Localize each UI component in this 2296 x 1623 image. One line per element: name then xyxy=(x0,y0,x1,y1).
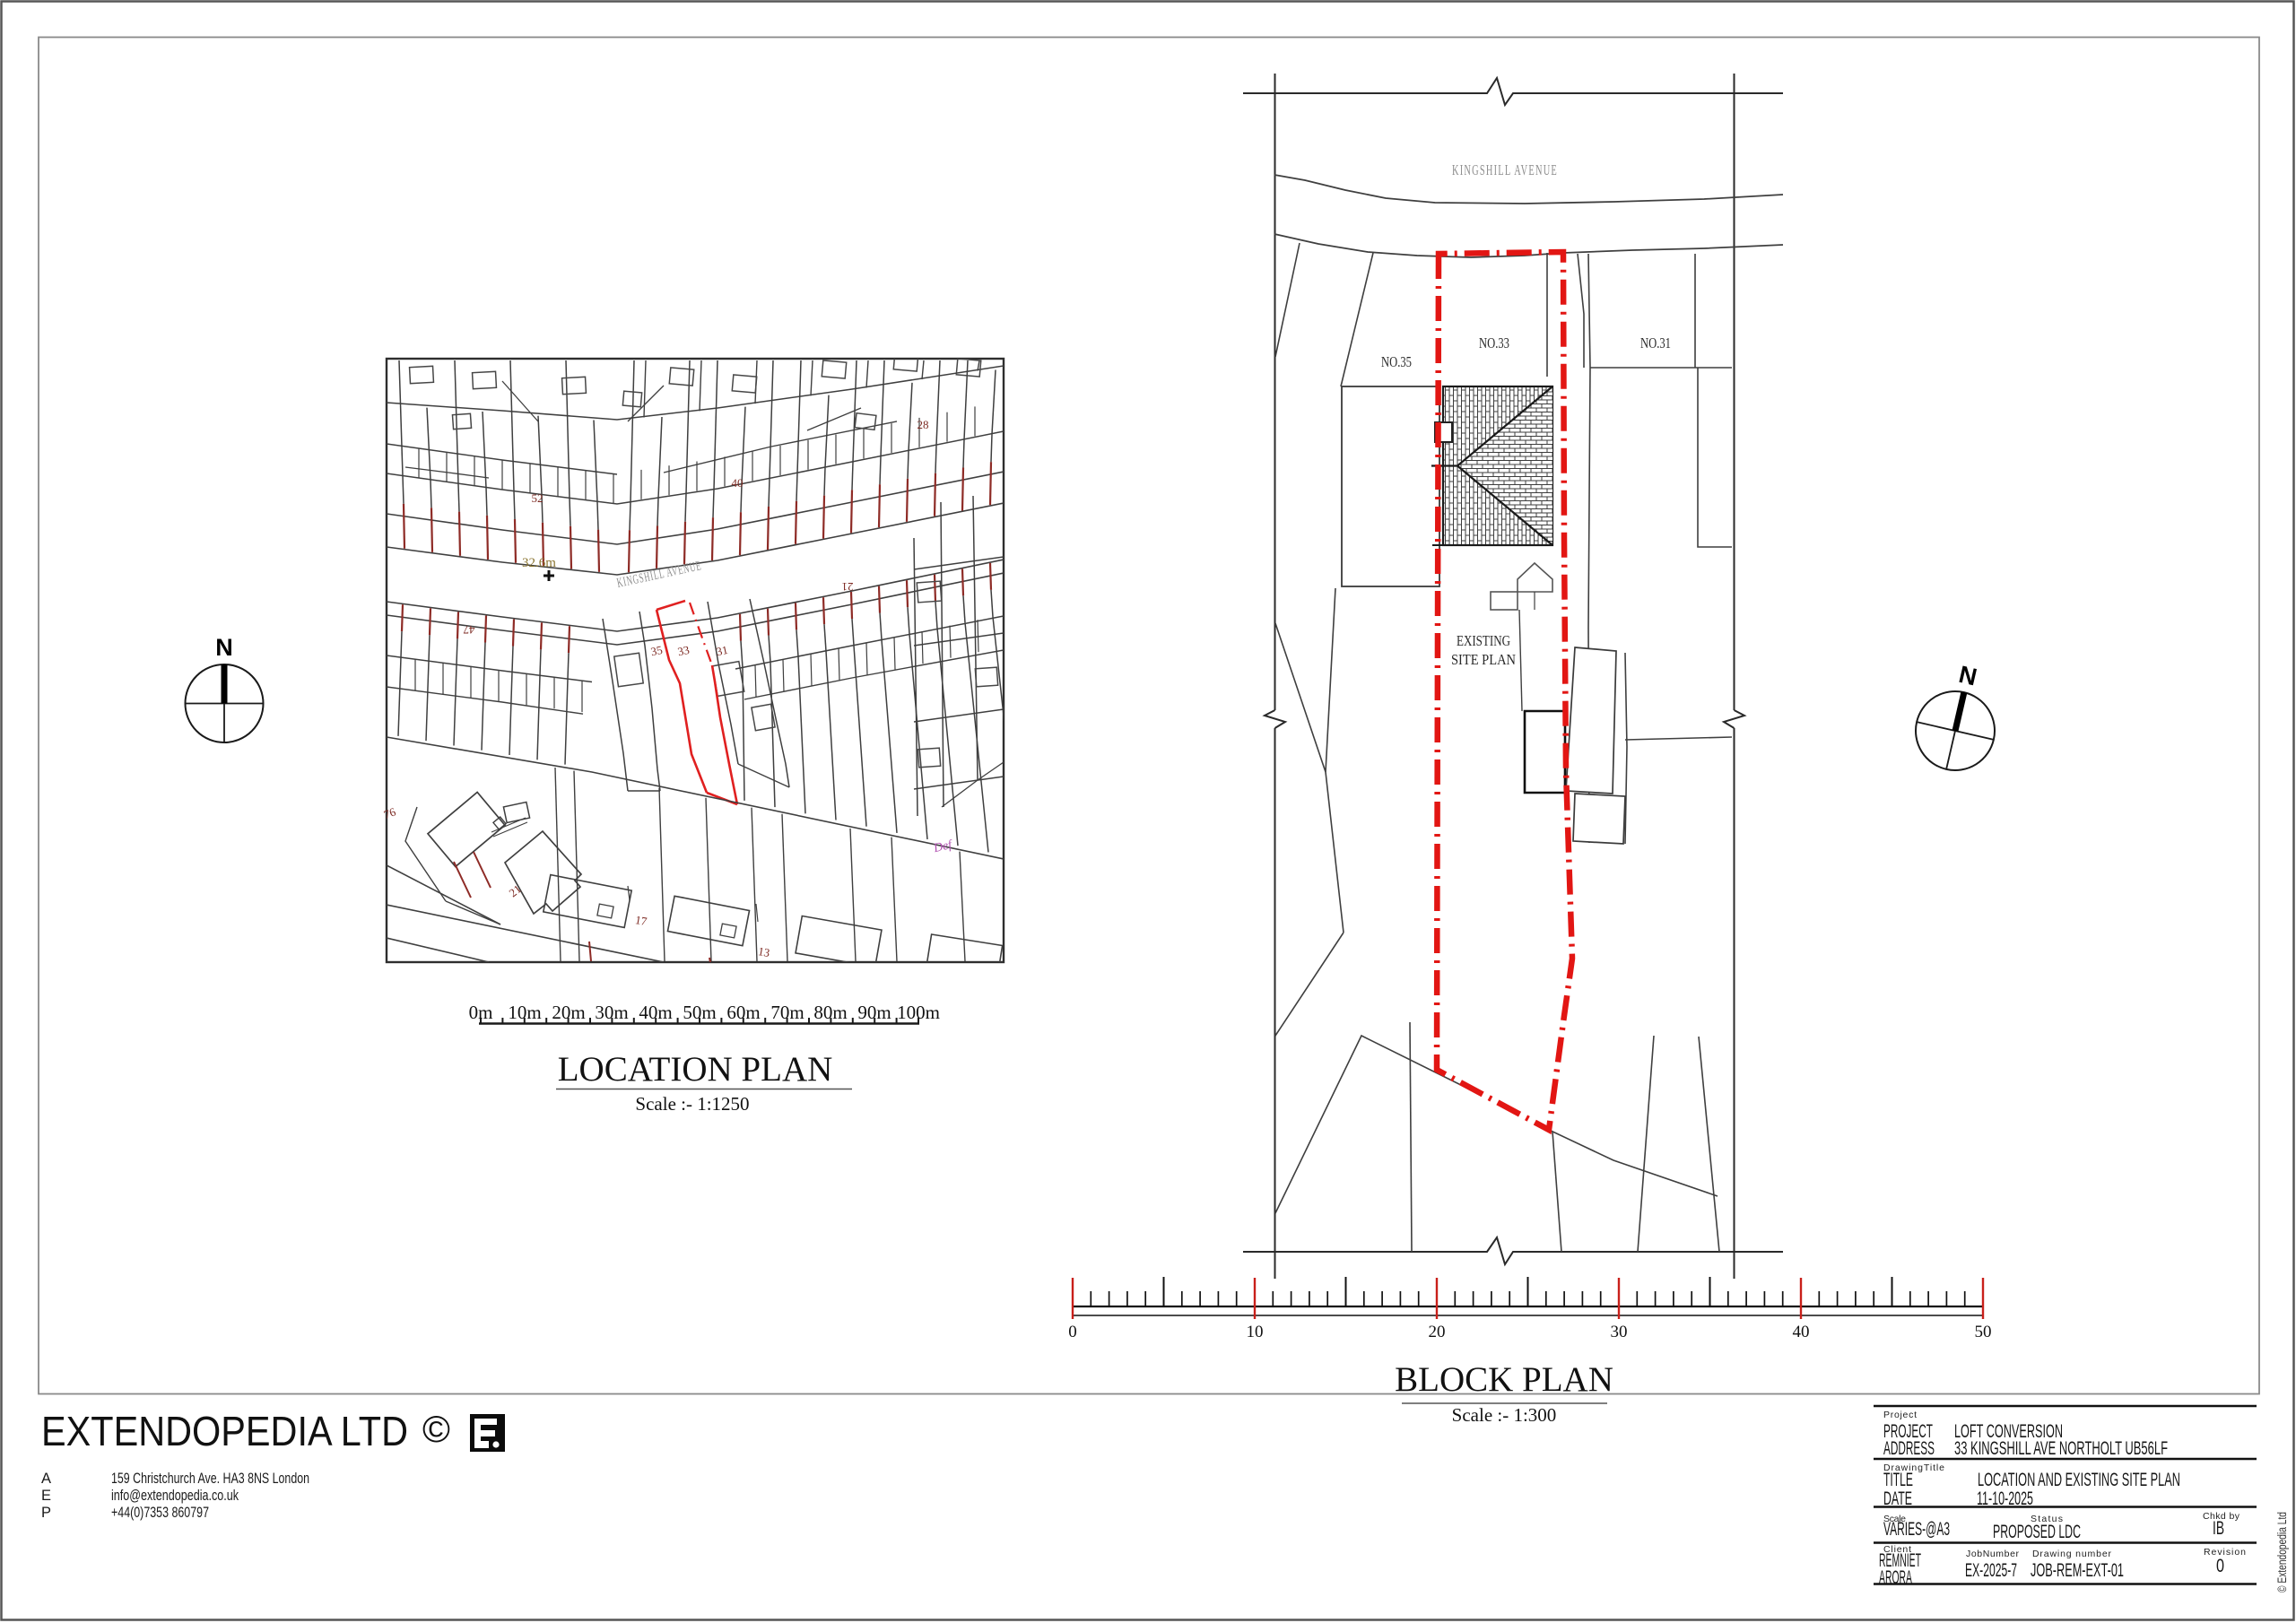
svg-text:P: P xyxy=(41,1505,51,1521)
svg-text:NO.35: NO.35 xyxy=(1381,353,1412,370)
svg-text:90m: 90m xyxy=(857,1002,891,1023)
svg-text:NO.33: NO.33 xyxy=(1479,334,1509,352)
svg-text:Drawing number: Drawing number xyxy=(2032,1549,2112,1559)
svg-text:50m: 50m xyxy=(683,1002,716,1023)
svg-text:Project: Project xyxy=(1883,1410,1917,1420)
svg-text:DATE: DATE xyxy=(1883,1488,1912,1509)
svg-text:0m: 0m xyxy=(469,1002,493,1023)
svg-text:52: 52 xyxy=(532,491,544,505)
svg-text:©: © xyxy=(422,1408,450,1450)
svg-text:30: 30 xyxy=(1611,1323,1628,1341)
svg-text:20m: 20m xyxy=(552,1002,585,1023)
svg-text:20: 20 xyxy=(1429,1323,1446,1341)
svg-text:SITE PLAN: SITE PLAN xyxy=(1451,651,1516,668)
svg-text:JOB-REM-EXT-01: JOB-REM-EXT-01 xyxy=(2031,1560,2124,1581)
svg-text:E: E xyxy=(41,1488,51,1504)
svg-text:ADDRESS: ADDRESS xyxy=(1883,1438,1935,1459)
svg-text:LOCATION PLAN: LOCATION PLAN xyxy=(558,1050,833,1089)
svg-text:Revision: Revision xyxy=(2204,1547,2246,1558)
svg-text:28: 28 xyxy=(918,418,929,431)
svg-text:TITLE: TITLE xyxy=(1883,1470,1913,1490)
svg-text:40: 40 xyxy=(732,476,744,490)
svg-text:BLOCK PLAN: BLOCK PLAN xyxy=(1395,1360,1613,1399)
svg-text:EXTENDOPEDIA LTD: EXTENDOPEDIA LTD xyxy=(41,1408,408,1454)
svg-text:60m: 60m xyxy=(726,1002,760,1023)
svg-text:+44(0)7353 860797: +44(0)7353 860797 xyxy=(111,1505,209,1521)
svg-text:10m: 10m xyxy=(508,1002,541,1023)
svg-text:0: 0 xyxy=(1068,1323,1077,1341)
svg-text:VARIES-@A3: VARIES-@A3 xyxy=(1883,1519,1950,1540)
svg-text:10: 10 xyxy=(1247,1323,1264,1341)
svg-text:80m: 80m xyxy=(813,1002,847,1023)
svg-text:11-10-2025: 11-10-2025 xyxy=(1977,1488,2033,1509)
svg-text:Scale :- 1:1250: Scale :- 1:1250 xyxy=(635,1093,749,1115)
svg-text:30m: 30m xyxy=(595,1002,628,1023)
svg-text:33 KINGSHILL AVE NORTHOLT UB56: 33 KINGSHILL AVE NORTHOLT UB56LF xyxy=(1954,1438,2168,1459)
svg-text:13: 13 xyxy=(757,944,770,959)
svg-text:NO.31: NO.31 xyxy=(1640,334,1671,352)
svg-text:70m: 70m xyxy=(770,1002,804,1023)
svg-text:N: N xyxy=(215,634,233,661)
svg-text:PROPOSED LDC: PROPOSED LDC xyxy=(1993,1522,2081,1542)
svg-text:A: A xyxy=(41,1471,51,1487)
svg-text:KINGSHILL AVENUE: KINGSHILL AVENUE xyxy=(1452,161,1558,178)
svg-text:EXISTING: EXISTING xyxy=(1457,632,1510,649)
svg-text:Scale :- 1:300: Scale :- 1:300 xyxy=(1452,1404,1557,1426)
svg-text:40m: 40m xyxy=(639,1002,672,1023)
svg-text:32.6m: 32.6m xyxy=(522,556,556,570)
svg-text:40: 40 xyxy=(1793,1323,1810,1341)
svg-text:JobNumber: JobNumber xyxy=(1966,1549,2020,1559)
svg-text:EX-2025-7: EX-2025-7 xyxy=(1965,1560,2017,1581)
svg-text:IB: IB xyxy=(2213,1518,2224,1539)
svg-text:© Extendopedia Ltd: © Extendopedia Ltd xyxy=(2275,1512,2289,1593)
svg-text:LOCATION AND EXISTING SITE PLA: LOCATION AND EXISTING SITE PLAN xyxy=(1978,1470,2180,1490)
svg-text:0: 0 xyxy=(2216,1556,2224,1576)
svg-text:ARORA: ARORA xyxy=(1879,1567,1912,1588)
svg-text:50: 50 xyxy=(1975,1323,1992,1341)
svg-text:100m: 100m xyxy=(897,1002,940,1023)
svg-text:159 Christchurch Ave. HA3 8NS: 159 Christchurch Ave. HA3 8NS London xyxy=(111,1471,309,1487)
svg-text:21: 21 xyxy=(842,580,854,594)
svg-text:47: 47 xyxy=(463,623,475,637)
svg-text:info@extendopedia.co.uk: info@extendopedia.co.uk xyxy=(111,1488,239,1504)
